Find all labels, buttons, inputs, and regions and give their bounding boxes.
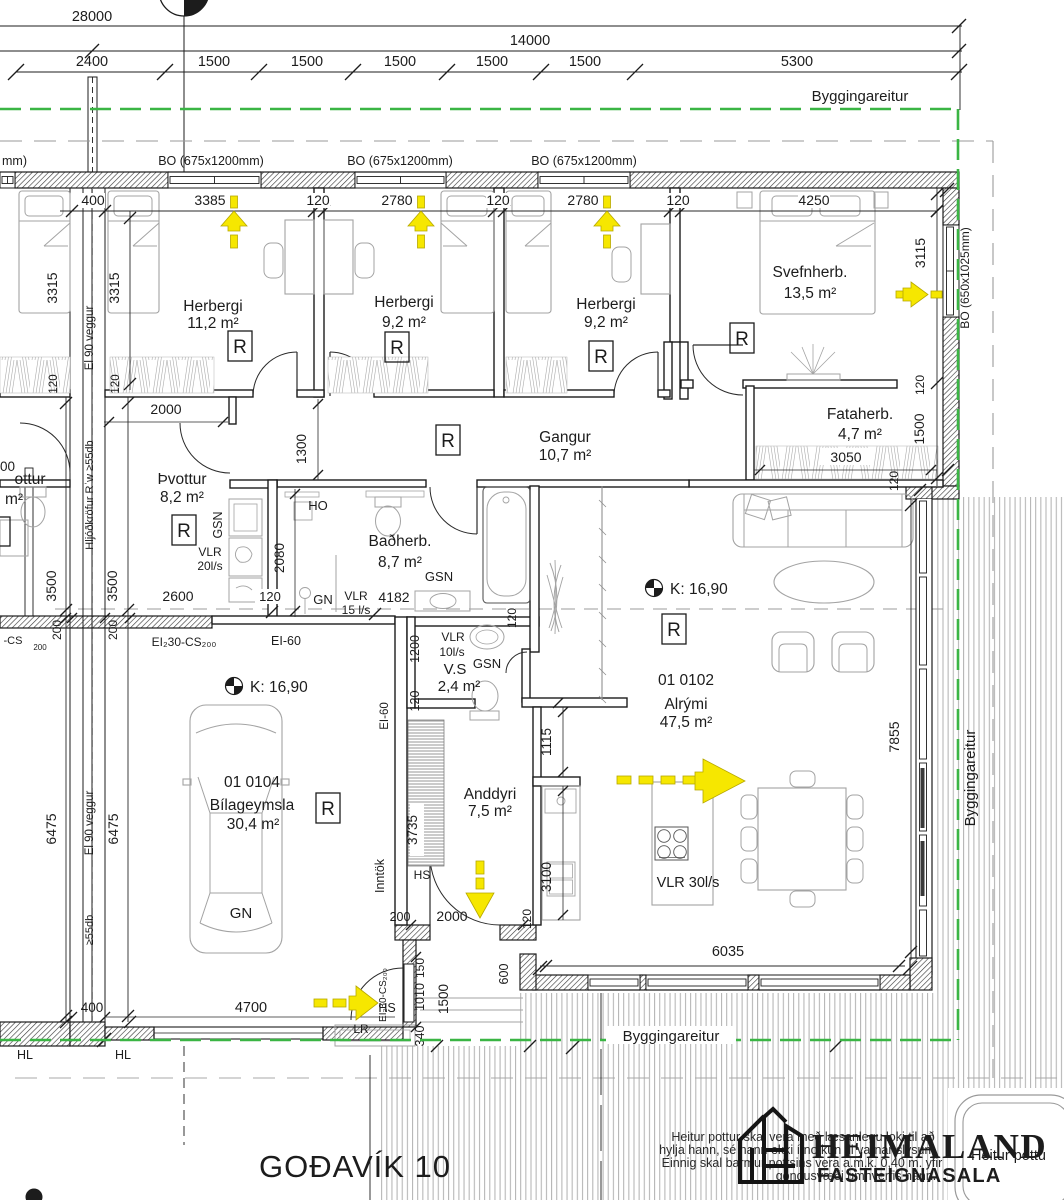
svg-text:01 0104: 01 0104	[224, 774, 280, 791]
svg-text:28000: 28000	[72, 9, 112, 25]
svg-text:GOÐAVÍK 10: GOÐAVÍK 10	[259, 1149, 451, 1184]
svg-text:R: R	[390, 338, 404, 359]
svg-text:120: 120	[110, 374, 122, 393]
svg-text:Inntök: Inntök	[373, 858, 387, 893]
svg-text:120: 120	[486, 192, 510, 208]
svg-text:4700: 4700	[235, 1000, 267, 1016]
svg-text:1200: 1200	[408, 635, 422, 663]
svg-text:K: 16,90: K: 16,90	[670, 581, 728, 598]
svg-text:VLR 30l/s: VLR 30l/s	[657, 875, 720, 891]
svg-text:HS: HS	[414, 868, 431, 882]
svg-text:BO (650x1025mm): BO (650x1025mm)	[958, 227, 972, 328]
svg-text:R: R	[233, 337, 247, 358]
svg-text:120: 120	[505, 608, 519, 628]
svg-text:4,7 m²: 4,7 m²	[838, 426, 882, 443]
svg-text:600: 600	[497, 964, 511, 985]
svg-text:GN: GN	[230, 905, 253, 922]
svg-text:m²: m²	[5, 491, 23, 508]
svg-text:1300: 1300	[294, 434, 309, 464]
svg-text:120: 120	[408, 691, 422, 712]
svg-text:GSN: GSN	[473, 656, 501, 671]
svg-text:HL: HL	[17, 1048, 33, 1062]
svg-text:R: R	[441, 431, 455, 452]
svg-text:Byggingareitur: Byggingareitur	[812, 88, 909, 105]
svg-text:1500: 1500	[436, 984, 451, 1014]
svg-text:120: 120	[306, 192, 330, 208]
svg-text:7855: 7855	[886, 721, 902, 752]
svg-text:10,7 m²: 10,7 m²	[539, 447, 592, 464]
svg-text:R: R	[177, 521, 191, 542]
svg-text:150: 150	[413, 958, 427, 978]
svg-text:1500: 1500	[911, 413, 927, 444]
svg-text:Svefnherb.: Svefnherb.	[773, 264, 848, 281]
svg-text:VLR: VLR	[198, 545, 222, 559]
svg-text:9,2 m²: 9,2 m²	[382, 314, 426, 331]
svg-text:Anddyri: Anddyri	[464, 786, 517, 803]
svg-text:Bílageymsla: Bílageymsla	[210, 797, 295, 814]
svg-text:LR: LR	[353, 1022, 369, 1036]
svg-text:200: 200	[106, 620, 120, 640]
svg-text:2780: 2780	[567, 192, 598, 208]
svg-text:VLR: VLR	[344, 589, 368, 603]
svg-text:GSN: GSN	[211, 511, 225, 538]
svg-text:R: R	[594, 347, 608, 368]
svg-text:Hljóðkröfur Rˈw ≥55db: Hljóðkröfur Rˈw ≥55db	[84, 440, 96, 549]
svg-text:Þvottur: Þvottur	[157, 471, 206, 488]
svg-text:13,5 m²: 13,5 m²	[784, 285, 837, 302]
svg-text:400: 400	[81, 192, 105, 208]
svg-text:GN: GN	[313, 592, 333, 607]
svg-text:01 0102: 01 0102	[658, 672, 714, 689]
svg-text:10l/s: 10l/s	[439, 645, 464, 659]
svg-text:120: 120	[259, 589, 281, 604]
svg-text:4182: 4182	[378, 589, 409, 605]
svg-text:ottur: ottur	[14, 471, 45, 488]
svg-text:5300: 5300	[781, 54, 813, 70]
svg-text:2000: 2000	[0, 459, 15, 474]
svg-text:1500: 1500	[476, 54, 508, 70]
svg-text:3115: 3115	[912, 238, 928, 268]
svg-text:V.S: V.S	[444, 661, 467, 678]
svg-text:R: R	[735, 329, 749, 350]
svg-text:1115: 1115	[539, 728, 554, 756]
svg-text:6475: 6475	[105, 813, 121, 844]
svg-text:Herbergi: Herbergi	[374, 294, 433, 311]
svg-text:Herbergi: Herbergi	[576, 296, 635, 313]
svg-text:2,4 m²: 2,4 m²	[438, 678, 481, 695]
svg-text:14000: 14000	[510, 33, 550, 49]
svg-text:EI-60: EI-60	[379, 702, 391, 730]
svg-text:2080: 2080	[272, 543, 287, 573]
svg-text:Fataherb.: Fataherb.	[827, 406, 893, 423]
svg-text:3735: 3735	[405, 815, 420, 845]
svg-text:4250: 4250	[798, 192, 829, 208]
svg-text:1500: 1500	[198, 54, 230, 70]
svg-text:R: R	[321, 799, 335, 820]
svg-text:9,2 m²: 9,2 m²	[584, 314, 628, 331]
svg-text:120: 120	[48, 374, 60, 393]
svg-text:GSN: GSN	[425, 569, 453, 584]
svg-text:Gangur: Gangur	[539, 429, 591, 446]
svg-text:EI-60: EI-60	[271, 634, 301, 648]
svg-text:15 l/s: 15 l/s	[342, 603, 371, 617]
svg-text:HL: HL	[115, 1048, 131, 1062]
svg-text:400: 400	[81, 1000, 104, 1015]
svg-text:11,2 m²: 11,2 m²	[187, 315, 238, 332]
svg-text:Byggingareitur: Byggingareitur	[623, 1028, 720, 1045]
svg-text:2000: 2000	[436, 908, 467, 924]
svg-text:VLR: VLR	[441, 630, 465, 644]
svg-text:6035: 6035	[712, 944, 744, 960]
svg-text:1500: 1500	[569, 54, 601, 70]
svg-text:3500: 3500	[43, 570, 59, 601]
svg-text:20l/s: 20l/s	[197, 559, 222, 573]
svg-text:BO (675x1200mm): BO (675x1200mm)	[347, 154, 453, 168]
svg-text:HEIMALAND: HEIMALAND	[812, 1127, 1047, 1166]
svg-text:El 90 veggur: El 90 veggur	[84, 306, 96, 371]
svg-text:47,5 m²: 47,5 m²	[660, 714, 713, 731]
svg-text:8,7 m²: 8,7 m²	[378, 554, 422, 571]
svg-text:7,5 m²: 7,5 m²	[468, 803, 512, 820]
svg-text:El 90 veggur: El 90 veggur	[84, 791, 96, 856]
svg-text:R: R	[667, 620, 681, 641]
svg-text:3050: 3050	[830, 449, 861, 465]
svg-text:3500: 3500	[104, 570, 120, 601]
svg-text:200: 200	[33, 643, 47, 652]
svg-text:K: 16,90: K: 16,90	[250, 679, 308, 696]
svg-text:2780: 2780	[381, 192, 412, 208]
svg-text:8,2 m²: 8,2 m²	[160, 489, 204, 506]
svg-text:120: 120	[666, 192, 690, 208]
svg-text:EI₂30-CS₂₀₀: EI₂30-CS₂₀₀	[378, 968, 389, 1022]
svg-text:1500: 1500	[384, 54, 416, 70]
svg-text:Baðherb.: Baðherb.	[369, 533, 432, 550]
svg-text:6475: 6475	[43, 813, 59, 844]
svg-text:3385: 3385	[194, 192, 225, 208]
svg-text:FASTEIGNASALA: FASTEIGNASALA	[817, 1165, 1002, 1187]
svg-text:3100: 3100	[539, 862, 554, 892]
svg-text:mm): mm)	[2, 154, 27, 168]
svg-text:-CS: -CS	[4, 635, 23, 647]
svg-text:3315: 3315	[44, 272, 60, 303]
svg-text:EI₂30-CS₂₀₀: EI₂30-CS₂₀₀	[152, 635, 217, 649]
svg-text:Herbergi: Herbergi	[183, 298, 242, 315]
svg-text:2000: 2000	[150, 401, 181, 417]
svg-text:Alrými: Alrými	[664, 696, 707, 713]
svg-text:30,4 m²: 30,4 m²	[227, 816, 280, 833]
svg-text:≥55db: ≥55db	[84, 915, 96, 946]
svg-text:120: 120	[913, 375, 927, 395]
svg-text:1500: 1500	[291, 54, 323, 70]
svg-text:2600: 2600	[162, 588, 193, 604]
svg-text:2400: 2400	[76, 54, 108, 70]
svg-text:1010: 1010	[413, 983, 427, 1011]
svg-text:120: 120	[887, 471, 901, 491]
svg-text:3315: 3315	[106, 272, 122, 303]
svg-text:BO (675x1200mm): BO (675x1200mm)	[531, 154, 637, 168]
svg-text:BO (675x1200mm): BO (675x1200mm)	[158, 154, 264, 168]
svg-text:200: 200	[390, 910, 411, 924]
svg-text:Byggingareitur: Byggingareitur	[962, 730, 979, 827]
svg-text:HO: HO	[308, 498, 328, 513]
